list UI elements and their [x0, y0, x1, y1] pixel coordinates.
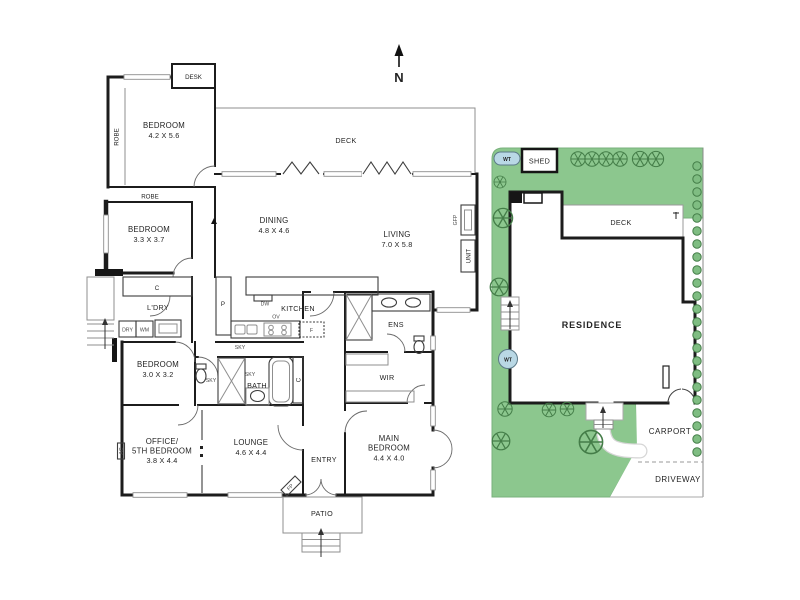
dryer-label: DRY: [122, 328, 133, 334]
bedroom1-label: BEDROOM: [143, 121, 185, 130]
fridge-label: F: [310, 328, 313, 334]
residence-label: RESIDENCE: [562, 320, 623, 330]
aircon-label: AC: [119, 447, 125, 454]
lounge-dims: 4.6 X 4.4: [235, 448, 266, 457]
bifold-gap2: [362, 169, 412, 179]
water-tank-circle-label: WT: [504, 358, 512, 364]
dining-dims: 4.8 X 4.6: [258, 226, 289, 235]
wall-block-1: [95, 269, 123, 276]
ens-label: ENS: [388, 320, 404, 329]
cupboard1-label: C: [155, 285, 160, 292]
main-bedroom-label-2: BEDROOM: [368, 444, 410, 453]
laundry-label: L'DRY: [147, 303, 169, 312]
dishwasher-label: DW: [261, 302, 270, 308]
wall-block-2: [112, 338, 117, 362]
bedroom3-label: BEDROOM: [137, 360, 179, 369]
shed-label: SHED: [529, 157, 550, 166]
oven-label: OV: [272, 315, 280, 321]
bedroom2-dims: 3.3 X 3.7: [133, 235, 164, 244]
residence-notch-box: [524, 193, 542, 203]
sky-bath-label: SKY: [245, 372, 256, 378]
living-dims: 7.0 X 5.8: [381, 240, 412, 249]
floorplan-svg: WT SHED WT: [0, 0, 800, 600]
ensuite-fixtures: [346, 294, 430, 402]
kitchen-label: KITCHEN: [281, 304, 315, 313]
bath-label: BATH: [247, 381, 267, 390]
deck-label: DECK: [335, 136, 356, 145]
sky-wc-label: SKY: [206, 378, 217, 384]
washer-label: WM: [140, 328, 149, 334]
unit-label: UNIT: [466, 249, 473, 264]
living-label: LIVING: [383, 230, 410, 239]
floorplan-page: WT SHED WT: [0, 0, 800, 600]
water-tank-pill-label: WT: [503, 157, 511, 163]
patio-structure: [283, 497, 362, 557]
carport-door-arcs: [668, 389, 695, 403]
office-label-1: OFFICE/: [146, 437, 179, 446]
divider-dot1: [200, 446, 203, 449]
residence-side-door: [663, 366, 669, 388]
office-label-2: 5TH BEDROOM: [132, 447, 192, 456]
wir-label: WIR: [380, 373, 395, 382]
bedroom3-dims: 3.0 X 3.2: [142, 370, 173, 379]
hall-marker-icon: [211, 218, 217, 224]
cupboard2-label: C: [296, 377, 303, 382]
desk-label: DESK: [185, 74, 203, 81]
site-deck-label: DECK: [610, 218, 631, 227]
divider-dot2: [200, 454, 203, 457]
gfp-label: GFP: [453, 214, 459, 225]
site-plan: WT SHED WT: [490, 148, 703, 497]
pantry-label: P: [221, 301, 225, 308]
site-stairs: [501, 297, 519, 330]
driveway-label: DRIVEWAY: [655, 475, 701, 484]
office-dims: 3.8 X 4.4: [146, 456, 177, 465]
floor-plan: BEDROOM 4.2 X 5.6 ROBE DESK ROBE BEDROOM…: [87, 64, 477, 557]
dining-label: DINING: [260, 216, 289, 225]
entry-label: ENTRY: [311, 455, 337, 464]
north-arrow: N: [394, 44, 403, 85]
sky-hall-label: SKY: [235, 345, 246, 351]
carport-label: CARPORT: [649, 427, 691, 436]
patio-label: PATIO: [311, 509, 333, 518]
fireplace-label: FP: [286, 483, 295, 492]
bedroom2-label: BEDROOM: [128, 225, 170, 234]
hedge-shrubs: [693, 162, 701, 456]
floor-stairs: [87, 277, 114, 349]
main-bedroom-label-1: MAIN: [379, 434, 400, 443]
robe2-label: ROBE: [141, 194, 159, 201]
residence-corner-block: [510, 192, 522, 203]
robe1-label: ROBE: [114, 128, 121, 146]
bedroom1-dims: 4.2 X 5.6: [148, 131, 179, 140]
main-bedroom-dims: 4.4 X 4.0: [373, 454, 404, 463]
north-label: N: [394, 70, 403, 85]
lounge-label: LOUNGE: [234, 438, 268, 447]
